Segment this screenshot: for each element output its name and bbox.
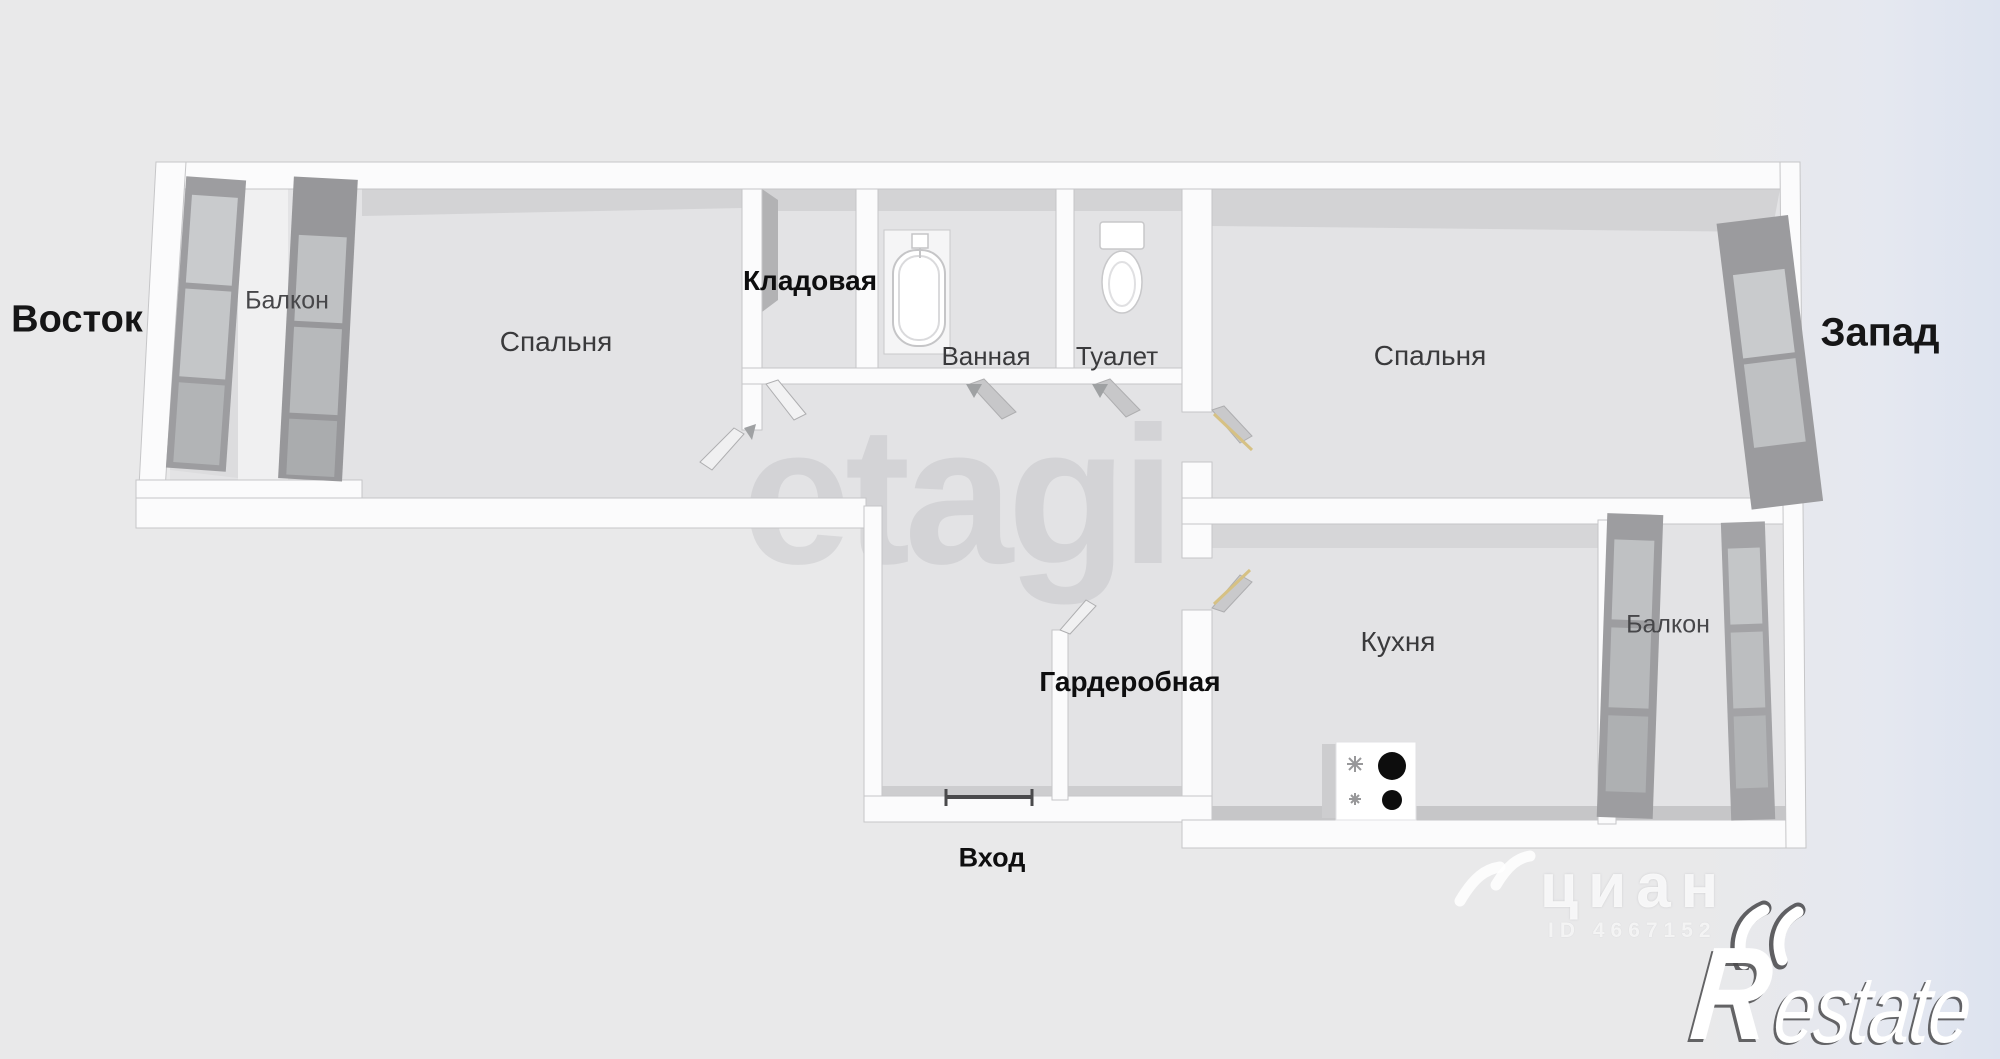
restate-initial: R	[1686, 928, 1778, 1059]
bathtub-icon	[884, 230, 950, 354]
bedroom1-door-leaf	[700, 428, 744, 470]
room-label-bedroom-1: Спальня	[500, 328, 613, 356]
entrance-label: Вход	[959, 845, 1026, 872]
room-label-toilet: Туалет	[1076, 343, 1158, 369]
restate-wordmark: estate	[1770, 962, 1975, 1058]
walls	[136, 162, 1806, 848]
room-label-storage: Кладовая	[743, 267, 877, 295]
room-label-kitchen: Кухня	[1361, 628, 1436, 656]
stove-icon	[1322, 742, 1416, 820]
room-label-balcony-west: Балкон	[1626, 613, 1710, 638]
toilet-icon	[1100, 222, 1144, 313]
wardrobe-door-leaf	[1060, 600, 1096, 634]
watermark-restate: R estate	[1668, 900, 2000, 1059]
room-label-bedroom-2: Спальня	[1374, 342, 1487, 370]
kitchen-door-leaf	[1212, 575, 1252, 612]
balcony-east-window-panels	[166, 176, 358, 481]
floor-plan-page: etagi	[0, 0, 2000, 1059]
compass-east-label: Восток	[11, 299, 143, 342]
bedroom2-window-panel	[1717, 215, 1824, 510]
room-label-wardrobe: Гардеробная	[1039, 668, 1220, 696]
compass-west-label: Запад	[1820, 311, 1939, 356]
bedroom2-door-leaf	[1212, 406, 1252, 443]
room-label-bathroom: Ванная	[941, 343, 1030, 369]
cian-bird-icon	[1452, 845, 1538, 911]
room-label-balcony-east: Балкон	[245, 289, 329, 314]
storage-door-leaf	[766, 380, 806, 420]
balcony-west-window-panels	[1597, 513, 1776, 821]
